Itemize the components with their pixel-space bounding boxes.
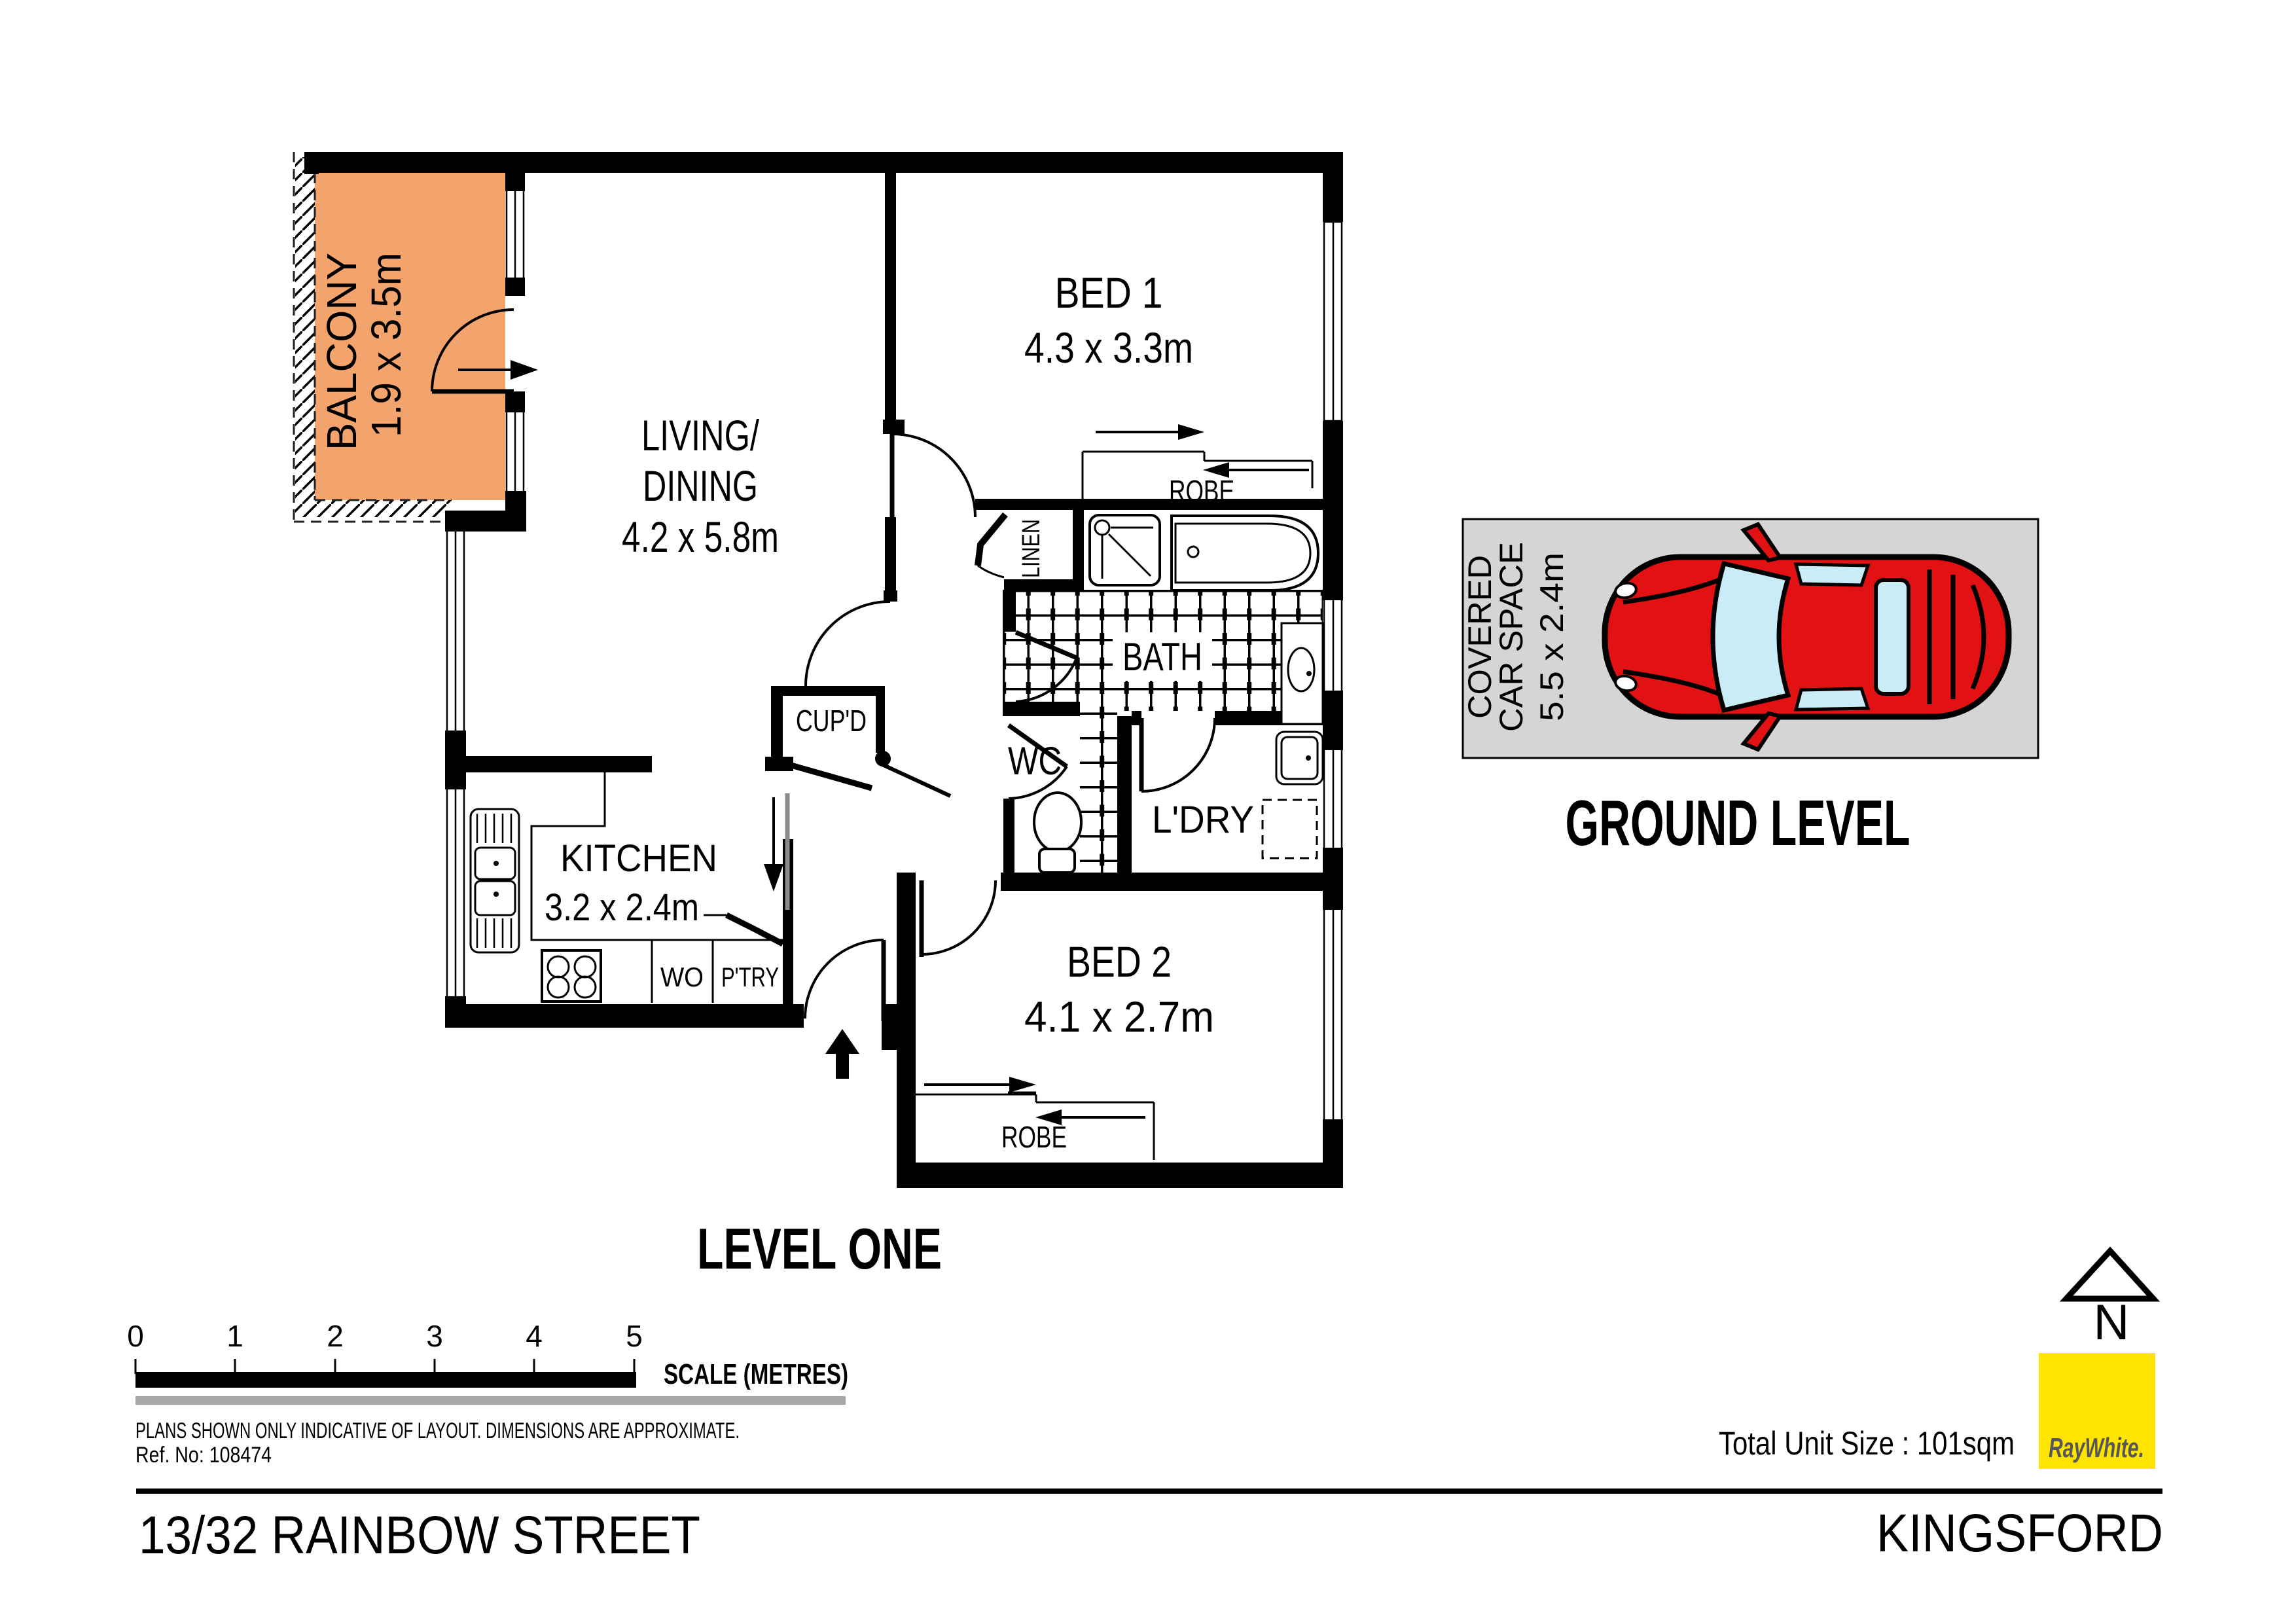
svg-text:WC: WC: [1008, 739, 1062, 783]
svg-text:SCALE (METRES): SCALE (METRES): [664, 1358, 848, 1390]
svg-text:BED 1: BED 1: [1055, 268, 1163, 317]
svg-text:LEVEL ONE: LEVEL ONE: [697, 1216, 942, 1281]
svg-text:P'TRY: P'TRY: [721, 962, 779, 992]
svg-text:LIVING/: LIVING/: [641, 411, 759, 460]
svg-text:4.1 x 2.7m: 4.1 x 2.7m: [1024, 992, 1214, 1041]
svg-text:KITCHEN: KITCHEN: [560, 837, 717, 880]
svg-text:KINGSFORD: KINGSFORD: [1876, 1504, 2163, 1563]
svg-text:0: 0: [127, 1319, 144, 1353]
svg-text:PLANS SHOWN ONLY INDICATIVE OF: PLANS SHOWN ONLY INDICATIVE OF LAYOUT. D…: [135, 1418, 740, 1443]
svg-text:13/32 RAINBOW STREET: 13/32 RAINBOW STREET: [139, 1506, 700, 1565]
svg-text:LINEN: LINEN: [1018, 519, 1045, 578]
svg-text:GROUND LEVEL: GROUND LEVEL: [1566, 787, 1910, 859]
svg-text:5.5 x 2.4m: 5.5 x 2.4m: [1534, 552, 1570, 721]
svg-text:ROBE: ROBE: [1001, 1120, 1067, 1154]
svg-text:BATH: BATH: [1122, 635, 1202, 679]
svg-text:2: 2: [327, 1319, 344, 1353]
svg-text:1: 1: [226, 1319, 243, 1353]
svg-text:3: 3: [426, 1319, 443, 1353]
svg-text:BALCONY: BALCONY: [318, 253, 365, 450]
svg-text:Total Unit Size : 101sqm: Total Unit Size : 101sqm: [1719, 1425, 2015, 1462]
svg-text:RayWhite.: RayWhite.: [2049, 1432, 2144, 1463]
svg-text:4.2 x 5.8m: 4.2 x 5.8m: [622, 513, 779, 561]
svg-text:4: 4: [526, 1319, 543, 1353]
svg-text:CAR SPACE: CAR SPACE: [1493, 542, 1530, 732]
svg-text:5: 5: [626, 1319, 643, 1353]
svg-text:WO: WO: [660, 962, 704, 992]
svg-text:DINING: DINING: [643, 461, 758, 510]
svg-text:N: N: [2094, 1295, 2130, 1350]
svg-text:3.2 x 2.4m: 3.2 x 2.4m: [545, 886, 699, 929]
svg-text:Ref. No: 108474: Ref. No: 108474: [135, 1443, 272, 1468]
svg-text:L'DRY: L'DRY: [1152, 799, 1254, 841]
svg-text:1.9 x 3.5m: 1.9 x 3.5m: [363, 253, 410, 437]
svg-text:4.3 x 3.3m: 4.3 x 3.3m: [1024, 323, 1193, 372]
svg-text:CUP'D: CUP'D: [796, 704, 867, 738]
svg-text:ROBE: ROBE: [1169, 474, 1234, 508]
svg-text:BED 2: BED 2: [1067, 937, 1172, 986]
